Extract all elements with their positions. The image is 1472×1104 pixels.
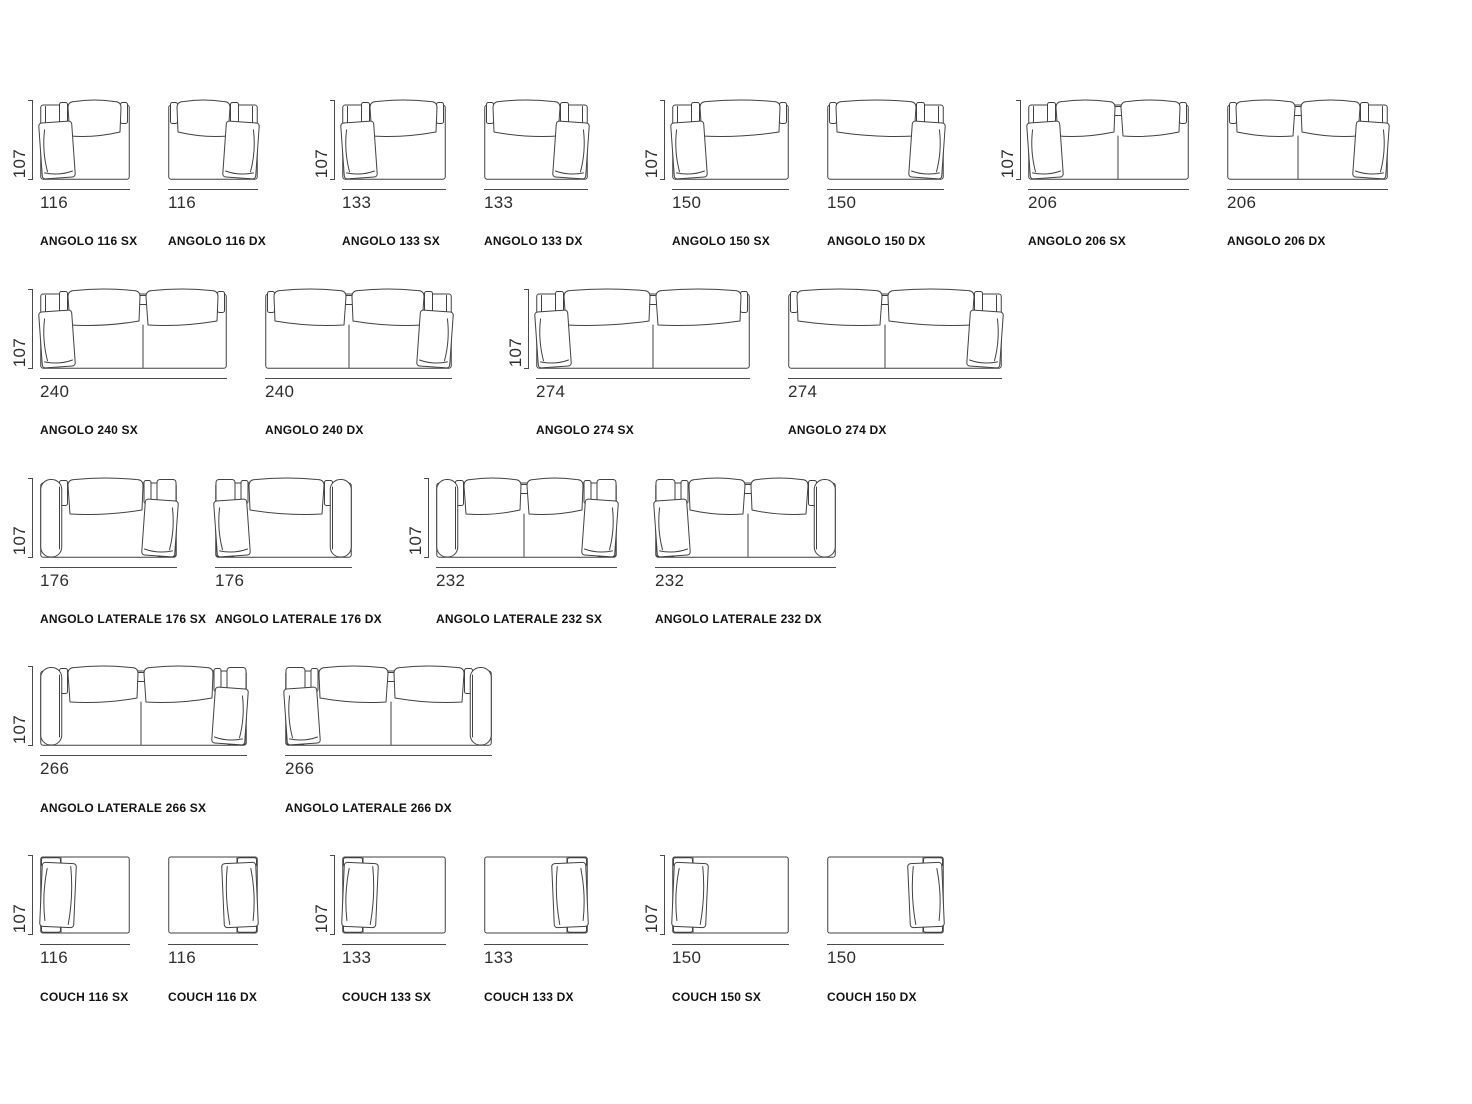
width-dim-line <box>827 944 944 945</box>
module-label: ANGOLO 206 DX <box>1227 234 1388 248</box>
sofa-top-view-drawing <box>655 478 836 558</box>
height-dim-line <box>32 855 33 935</box>
width-dim-label: 150 <box>827 948 944 968</box>
sofa-top-view-drawing <box>342 100 446 180</box>
module-label: COUCH 116 DX <box>168 990 258 1004</box>
width-dim-line <box>536 378 750 379</box>
width-dim-line <box>672 189 789 190</box>
module-main: 116ANGOLO 116 SX <box>40 100 130 249</box>
height-dimension: 107 <box>316 100 342 180</box>
width-dimension: 133 <box>484 944 588 968</box>
sofa-top-view-drawing <box>672 100 789 180</box>
sofa-top-view-drawing <box>484 100 588 180</box>
width-dim-line <box>285 755 492 756</box>
width-dim-label: 150 <box>672 193 789 213</box>
width-dim-label: 116 <box>168 948 258 968</box>
height-dim-line <box>334 100 335 180</box>
height-dimension: 107 <box>1002 100 1028 180</box>
sofa-top-view-drawing <box>40 855 130 935</box>
height-dim-line <box>528 289 529 369</box>
height-dim-line <box>428 478 429 558</box>
width-dimension: 133 <box>342 189 446 213</box>
module-main: 274ANGOLO 274 DX <box>788 289 1002 438</box>
module-angolo-116-dx: 116ANGOLO 116 DX <box>168 100 258 249</box>
sofa-top-view-drawing <box>788 289 1002 369</box>
module-angolo-206-dx: 206ANGOLO 206 DX <box>1227 100 1388 249</box>
module-row-3: 107176ANGOLO LATERALE 176 SX176ANGOLO LA… <box>14 478 1472 627</box>
sofa-top-view-drawing <box>215 478 352 558</box>
sofa-top-view-drawing <box>672 855 789 935</box>
width-dimension: 150 <box>827 944 944 968</box>
module-main: 116COUCH 116 DX <box>168 855 258 1004</box>
width-dimension: 116 <box>168 944 258 968</box>
height-dim-label: 107 <box>407 526 424 555</box>
width-dimension: 116 <box>168 189 258 213</box>
width-dimension: 206 <box>1028 189 1189 213</box>
width-dimension: 274 <box>788 378 1002 402</box>
width-dim-line <box>265 378 452 379</box>
width-dimension: 266 <box>285 755 492 779</box>
height-dim-label: 107 <box>313 149 330 178</box>
module-angolo-116-sx: 107116ANGOLO 116 SX <box>14 100 130 249</box>
height-dim-line <box>664 855 665 935</box>
module-main: 240ANGOLO 240 SX <box>40 289 227 438</box>
module-label: ANGOLO 133 SX <box>342 234 446 248</box>
module-row-1: 107116ANGOLO 116 SX116ANGOLO 116 DX10713… <box>14 100 1472 249</box>
module-angolo-240-sx: 107240ANGOLO 240 SX <box>14 289 227 438</box>
module-main: 150COUCH 150 SX <box>672 855 789 1004</box>
spec-sheet: 107116ANGOLO 116 SX116ANGOLO 116 DX10713… <box>0 0 1472 1104</box>
sofa-top-view-drawing <box>1028 100 1189 180</box>
module-couch-116-sx: 107116COUCH 116 SX <box>14 855 130 1004</box>
width-dim-label: 133 <box>484 193 588 213</box>
height-dim-line <box>32 100 33 180</box>
sofa-top-view-drawing <box>536 289 750 369</box>
width-dim-line <box>168 944 258 945</box>
width-dim-label: 206 <box>1028 193 1189 213</box>
width-dim-line <box>40 755 247 756</box>
module-label: ANGOLO 116 DX <box>168 234 258 248</box>
module-label: COUCH 116 SX <box>40 990 130 1004</box>
height-dimension: 107 <box>646 855 672 935</box>
module-main: 240ANGOLO 240 DX <box>265 289 452 438</box>
sofa-top-view-drawing <box>265 289 452 369</box>
module-label: ANGOLO LATERALE 266 DX <box>285 801 492 815</box>
height-dimension: 107 <box>410 478 436 558</box>
sofa-top-view-drawing <box>342 855 446 935</box>
width-dim-label: 150 <box>827 193 944 213</box>
module-couch-150-dx: 150COUCH 150 DX <box>827 855 944 1004</box>
module-label: ANGOLO 274 DX <box>788 423 1002 437</box>
width-dim-line <box>484 944 588 945</box>
module-angolo-150-sx: 107150ANGOLO 150 SX <box>646 100 789 249</box>
module-angolo-laterale-176-dx: 176ANGOLO LATERALE 176 DX <box>215 478 352 627</box>
height-dim-label: 107 <box>11 904 28 933</box>
module-main: 176ANGOLO LATERALE 176 SX <box>40 478 177 627</box>
width-dim-label: 274 <box>788 382 1002 402</box>
module-label: ANGOLO 150 SX <box>672 234 789 248</box>
width-dim-line <box>342 189 446 190</box>
height-dimension: 107 <box>14 666 40 746</box>
module-row-2: 107240ANGOLO 240 SX240ANGOLO 240 DX10727… <box>14 289 1472 438</box>
height-dim-label: 107 <box>643 149 660 178</box>
module-angolo-laterale-266-dx: 266ANGOLO LATERALE 266 DX <box>285 666 492 815</box>
width-dim-label: 206 <box>1227 193 1388 213</box>
height-dimension: 107 <box>316 855 342 935</box>
width-dim-line <box>215 567 352 568</box>
width-dim-label: 116 <box>40 948 130 968</box>
module-main: 133COUCH 133 DX <box>484 855 588 1004</box>
width-dimension: 133 <box>484 189 588 213</box>
module-label: ANGOLO 150 DX <box>827 234 944 248</box>
module-label: ANGOLO LATERALE 266 SX <box>40 801 247 815</box>
height-dimension: 107 <box>646 100 672 180</box>
height-dim-label: 107 <box>11 338 28 367</box>
width-dimension: 150 <box>672 944 789 968</box>
width-dimension: 116 <box>40 944 130 968</box>
module-label: COUCH 150 SX <box>672 990 789 1004</box>
module-angolo-150-dx: 150ANGOLO 150 DX <box>827 100 944 249</box>
width-dimension: 133 <box>342 944 446 968</box>
height-dim-label: 107 <box>507 338 524 367</box>
width-dim-label: 133 <box>342 193 446 213</box>
module-main: 116ANGOLO 116 DX <box>168 100 258 249</box>
sofa-top-view-drawing <box>1227 100 1388 180</box>
width-dim-label: 176 <box>40 571 177 591</box>
height-dim-line <box>334 855 335 935</box>
sofa-top-view-drawing <box>40 100 130 180</box>
module-label: ANGOLO 240 DX <box>265 423 452 437</box>
module-row-4: 107266ANGOLO LATERALE 266 SX266ANGOLO LA… <box>14 666 1472 815</box>
width-dimension: 176 <box>215 567 352 591</box>
width-dim-line <box>788 378 1002 379</box>
width-dim-line <box>1227 189 1388 190</box>
sofa-top-view-drawing <box>40 478 177 558</box>
sofa-top-view-drawing <box>168 100 258 180</box>
height-dimension: 107 <box>14 100 40 180</box>
module-main: 206ANGOLO 206 DX <box>1227 100 1388 249</box>
width-dim-line <box>1028 189 1189 190</box>
width-dim-label: 176 <box>215 571 352 591</box>
width-dim-label: 240 <box>40 382 227 402</box>
module-main: 133COUCH 133 SX <box>342 855 446 1004</box>
width-dim-line <box>827 189 944 190</box>
module-main: 266ANGOLO LATERALE 266 DX <box>285 666 492 815</box>
width-dim-line <box>40 378 227 379</box>
width-dim-label: 133 <box>484 948 588 968</box>
width-dimension: 266 <box>40 755 247 779</box>
module-label: ANGOLO LATERALE 232 DX <box>655 612 836 626</box>
height-dim-label: 107 <box>11 149 28 178</box>
width-dim-line <box>40 567 177 568</box>
sofa-top-view-drawing <box>285 666 492 746</box>
module-label: ANGOLO LATERALE 176 DX <box>215 612 352 626</box>
module-main: 232ANGOLO LATERALE 232 SX <box>436 478 617 627</box>
width-dim-label: 274 <box>536 382 750 402</box>
module-main: 150ANGOLO 150 SX <box>672 100 789 249</box>
module-main: 266ANGOLO LATERALE 266 SX <box>40 666 247 815</box>
module-main: 116COUCH 116 SX <box>40 855 130 1004</box>
width-dim-label: 150 <box>672 948 789 968</box>
height-dim-label: 107 <box>999 149 1016 178</box>
width-dim-line <box>436 567 617 568</box>
sofa-top-view-drawing <box>40 289 227 369</box>
sofa-top-view-drawing <box>827 855 944 935</box>
height-dimension: 107 <box>14 855 40 935</box>
sofa-top-view-drawing <box>484 855 588 935</box>
sofa-top-view-drawing <box>436 478 617 558</box>
height-dim-line <box>32 478 33 558</box>
height-dim-line <box>664 100 665 180</box>
module-angolo-133-sx: 107133ANGOLO 133 SX <box>316 100 446 249</box>
height-dim-line <box>1020 100 1021 180</box>
height-dimension: 107 <box>14 289 40 369</box>
width-dimension: 232 <box>655 567 836 591</box>
width-dimension: 232 <box>436 567 617 591</box>
module-row-5: 107116COUCH 116 SX116COUCH 116 DX107133C… <box>14 855 1472 1004</box>
width-dimension: 176 <box>40 567 177 591</box>
module-angolo-laterale-266-sx: 107266ANGOLO LATERALE 266 SX <box>14 666 247 815</box>
module-main: 133ANGOLO 133 DX <box>484 100 588 249</box>
module-main: 150ANGOLO 150 DX <box>827 100 944 249</box>
width-dim-line <box>655 567 836 568</box>
width-dim-label: 116 <box>168 193 258 213</box>
module-couch-150-sx: 107150COUCH 150 SX <box>646 855 789 1004</box>
module-main: 150COUCH 150 DX <box>827 855 944 1004</box>
height-dimension: 107 <box>14 478 40 558</box>
sofa-top-view-drawing <box>827 100 944 180</box>
width-dimension: 150 <box>672 189 789 213</box>
module-couch-116-dx: 116COUCH 116 DX <box>168 855 258 1004</box>
width-dim-label: 240 <box>265 382 452 402</box>
module-couch-133-dx: 133COUCH 133 DX <box>484 855 588 1004</box>
width-dim-line <box>40 944 130 945</box>
module-main: 274ANGOLO 274 SX <box>536 289 750 438</box>
module-angolo-laterale-232-sx: 107232ANGOLO LATERALE 232 SX <box>410 478 617 627</box>
module-couch-133-sx: 107133COUCH 133 SX <box>316 855 446 1004</box>
module-angolo-274-sx: 107274ANGOLO 274 SX <box>510 289 750 438</box>
module-label: ANGOLO 206 SX <box>1028 234 1189 248</box>
width-dim-label: 266 <box>285 759 492 779</box>
module-main: 176ANGOLO LATERALE 176 DX <box>215 478 352 627</box>
width-dim-line <box>342 944 446 945</box>
module-angolo-274-dx: 274ANGOLO 274 DX <box>788 289 1002 438</box>
width-dimension: 150 <box>827 189 944 213</box>
sofa-top-view-drawing <box>168 855 258 935</box>
width-dimension: 240 <box>40 378 227 402</box>
module-label: COUCH 133 SX <box>342 990 446 1004</box>
width-dimension: 240 <box>265 378 452 402</box>
sofa-top-view-drawing <box>40 666 247 746</box>
width-dimension: 116 <box>40 189 130 213</box>
height-dimension: 107 <box>510 289 536 369</box>
width-dim-label: 232 <box>655 571 836 591</box>
module-main: 206ANGOLO 206 SX <box>1028 100 1189 249</box>
height-dim-label: 107 <box>11 715 28 744</box>
width-dim-line <box>484 189 588 190</box>
width-dim-label: 232 <box>436 571 617 591</box>
width-dim-line <box>672 944 789 945</box>
width-dim-label: 133 <box>342 948 446 968</box>
width-dimension: 274 <box>536 378 750 402</box>
height-dim-label: 107 <box>313 904 330 933</box>
module-label: COUCH 133 DX <box>484 990 588 1004</box>
module-angolo-206-sx: 107206ANGOLO 206 SX <box>1002 100 1189 249</box>
module-main: 133ANGOLO 133 SX <box>342 100 446 249</box>
module-label: ANGOLO 240 SX <box>40 423 227 437</box>
width-dim-line <box>40 189 130 190</box>
module-label: ANGOLO 133 DX <box>484 234 588 248</box>
module-label: ANGOLO LATERALE 232 SX <box>436 612 617 626</box>
module-label: COUCH 150 DX <box>827 990 944 1004</box>
module-label: ANGOLO 116 SX <box>40 234 130 248</box>
module-angolo-240-dx: 240ANGOLO 240 DX <box>265 289 452 438</box>
height-dim-line <box>32 289 33 369</box>
width-dim-label: 116 <box>40 193 130 213</box>
module-main: 232ANGOLO LATERALE 232 DX <box>655 478 836 627</box>
module-label: ANGOLO LATERALE 176 SX <box>40 612 177 626</box>
module-angolo-laterale-176-sx: 107176ANGOLO LATERALE 176 SX <box>14 478 177 627</box>
height-dim-line <box>32 666 33 746</box>
height-dim-label: 107 <box>643 904 660 933</box>
module-angolo-133-dx: 133ANGOLO 133 DX <box>484 100 588 249</box>
module-label: ANGOLO 274 SX <box>536 423 750 437</box>
height-dim-label: 107 <box>11 526 28 555</box>
width-dimension: 206 <box>1227 189 1388 213</box>
width-dim-line <box>168 189 258 190</box>
module-angolo-laterale-232-dx: 232ANGOLO LATERALE 232 DX <box>655 478 836 627</box>
width-dim-label: 266 <box>40 759 247 779</box>
